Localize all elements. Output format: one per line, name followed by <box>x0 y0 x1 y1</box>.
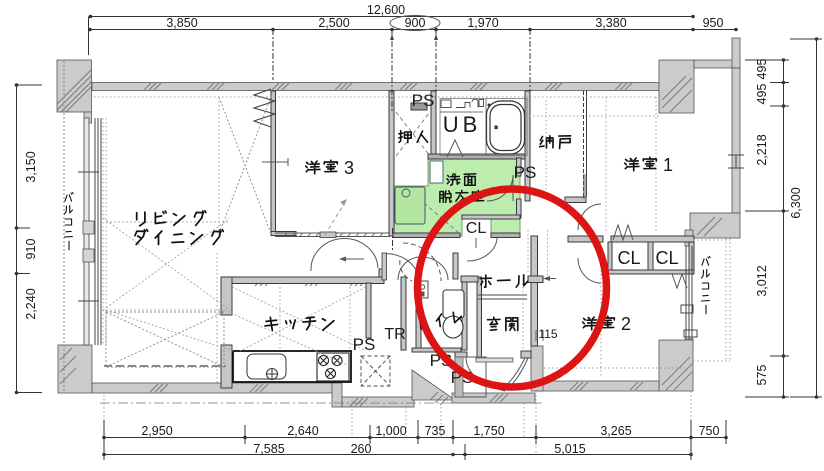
svg-text:1: 1 <box>663 155 673 175</box>
svg-text:PS: PS <box>353 335 376 354</box>
svg-text:750: 750 <box>699 424 720 438</box>
svg-text:12,600: 12,600 <box>367 3 405 17</box>
svg-text:CL: CL <box>655 248 678 268</box>
svg-text:6,300: 6,300 <box>789 187 803 218</box>
svg-text:PS: PS <box>412 91 435 110</box>
svg-text:2,240: 2,240 <box>24 288 38 319</box>
svg-text:1,000: 1,000 <box>375 424 406 438</box>
svg-text:UB: UB <box>443 112 482 137</box>
svg-text:3,850: 3,850 <box>166 16 197 30</box>
svg-text:1,750: 1,750 <box>473 424 504 438</box>
svg-text:495: 495 <box>755 59 769 80</box>
svg-text:1,970: 1,970 <box>467 16 498 30</box>
svg-text:TR: TR <box>384 326 405 343</box>
svg-text:PS: PS <box>514 163 537 182</box>
svg-text:7,585: 7,585 <box>253 442 284 456</box>
svg-text:2,218: 2,218 <box>755 134 769 165</box>
svg-text:3,012: 3,012 <box>755 265 769 296</box>
svg-text:3,150: 3,150 <box>24 151 38 182</box>
svg-text:CL: CL <box>617 248 640 268</box>
svg-text:CL: CL <box>466 220 487 237</box>
svg-text:575: 575 <box>755 365 769 386</box>
svg-text:5,015: 5,015 <box>554 442 585 456</box>
svg-text:950: 950 <box>703 16 724 30</box>
svg-text:900: 900 <box>405 16 426 30</box>
svg-text:2,640: 2,640 <box>287 424 318 438</box>
svg-text:2,500: 2,500 <box>318 16 349 30</box>
svg-text:910: 910 <box>24 239 38 260</box>
svg-text:495: 495 <box>755 84 769 105</box>
svg-text:3: 3 <box>344 158 354 178</box>
svg-text:2,950: 2,950 <box>141 424 172 438</box>
svg-text:3,265: 3,265 <box>600 424 631 438</box>
svg-text:735: 735 <box>425 424 446 438</box>
svg-text:2: 2 <box>621 314 631 334</box>
svg-text:3,380: 3,380 <box>595 16 626 30</box>
svg-text:260: 260 <box>351 442 372 456</box>
svg-text:115: 115 <box>538 327 557 341</box>
